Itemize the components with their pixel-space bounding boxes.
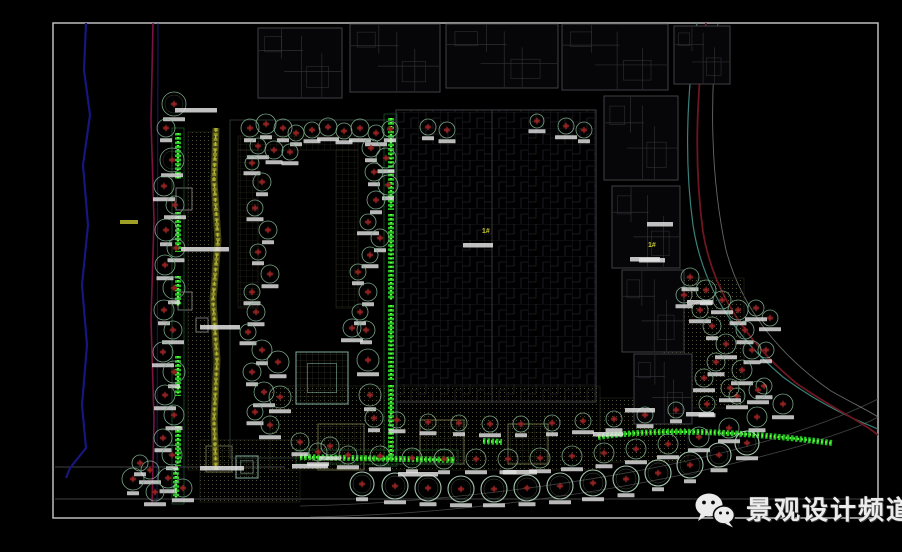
tree-label [719,398,741,402]
tree-label [479,433,501,437]
tree-label [349,138,371,142]
tree-label [160,138,172,142]
tree-label [365,142,387,146]
tree-label [369,467,391,471]
watermark-text: 景观设计频道 [746,491,902,529]
site-plan-drawing: 1#1# [0,0,902,552]
building-outline [350,24,440,92]
tree-label [618,493,635,497]
main-building-block [396,110,596,402]
building-outline [674,26,730,84]
tree-label [582,497,604,501]
tree-label [726,405,748,409]
annotation-label [625,408,655,413]
tree-label [693,388,715,392]
tree-label [747,400,769,404]
tree-label [420,502,437,506]
tree-label [689,319,711,323]
tree-label [759,327,781,331]
plaza-square [296,352,348,404]
tree-label [625,460,647,464]
tree-label [736,456,758,460]
tree-label [715,355,737,359]
tree-label [572,430,594,434]
tree-label [256,192,268,196]
tree-label [438,470,450,474]
tree-label [153,197,175,201]
building-outline [562,24,668,90]
tree-label [670,419,682,423]
annotation-label [398,472,438,477]
tree-label [262,240,274,244]
tree-label [684,479,696,483]
tree-label [760,359,772,363]
tree-label [337,465,359,469]
building-outline [258,28,342,98]
tree-label [657,455,679,459]
building-number-label: 1# [648,242,656,249]
tree-label [374,248,386,252]
building-outline [622,270,684,352]
tree-label [252,261,264,265]
tree-label [368,428,380,432]
tree-label [370,210,382,214]
tree-label [637,424,654,428]
tree-label [382,196,394,200]
plan-layers: 1#1# [0,0,902,552]
tree-label [270,374,287,378]
annotation-label [175,108,217,113]
tree-label [161,173,183,177]
tree-label [362,302,374,306]
tree-label [718,439,740,443]
building-number-label: 1# [482,228,490,235]
tree-label [772,415,794,419]
tree-label [152,363,174,367]
tree-label [160,242,172,246]
building-outline [604,96,678,180]
river-name-label [120,220,138,224]
tree-label [711,310,733,314]
tree-label [365,158,377,162]
tree-label [269,409,291,413]
tree-label [166,426,183,430]
tree-label [420,431,437,435]
tree-label [341,338,363,342]
tree-label [519,502,536,506]
tree-label [144,502,166,506]
tree-label [596,464,613,468]
tree-label [262,284,279,288]
building-outline [446,24,558,88]
tree-label [266,160,283,164]
annotation-label [503,470,537,475]
tree-label [676,304,693,308]
tree-label [378,169,395,173]
annotation-label [686,412,714,417]
tree-label [422,136,434,140]
tree-label [164,215,186,219]
tree-label [389,429,406,433]
annotation-label [181,247,229,252]
tree-label [453,432,465,436]
tree-label [711,468,728,472]
tree-label [247,217,264,221]
tree-label [483,503,505,507]
tree-label [578,139,590,143]
tree-label [256,361,268,365]
tree-label [172,498,194,502]
tree-label [127,491,139,495]
tree-label [244,171,261,175]
wechat-icon [694,492,738,528]
tree-label [515,433,527,437]
tree-label [292,452,309,456]
tree-label [606,428,623,432]
tree-label [745,317,767,321]
tree-label [277,138,289,142]
annotation-label [630,257,660,262]
tree-label [157,276,174,280]
tree-label [356,497,368,501]
tree-label [357,372,379,376]
annotation-label [200,325,240,330]
tree-label [652,487,664,491]
tree-label [555,135,577,139]
annotation-label [647,222,673,227]
tree-label [259,435,281,439]
annotation-label [687,300,713,305]
tree-label [134,472,146,476]
annotation-label [200,466,244,471]
tree-label [282,161,299,165]
tree-label [450,503,472,507]
tree-label [360,340,372,344]
tree-label [384,500,406,504]
tree-label [529,129,546,133]
tree-label [706,336,718,340]
tree-label [352,281,364,285]
tree-label [549,500,571,504]
annotation-label [463,243,493,248]
tree-label [439,139,456,143]
screenshot-canvas: 1#1# 景观设计频道 [0,0,902,552]
annotation-label [292,464,328,469]
tree-label [357,231,379,235]
tree-label [384,138,396,142]
building-outline [612,186,680,268]
tree-label [465,470,487,474]
watermark: 景观设计频道 [694,491,902,529]
tree-label [154,406,176,410]
annotation-label [593,432,623,437]
tree-label [708,372,725,376]
tree-label [168,258,185,262]
tree-label [158,321,170,325]
tree-label [546,432,558,436]
tree-label [561,467,583,471]
tree-label [731,381,753,385]
